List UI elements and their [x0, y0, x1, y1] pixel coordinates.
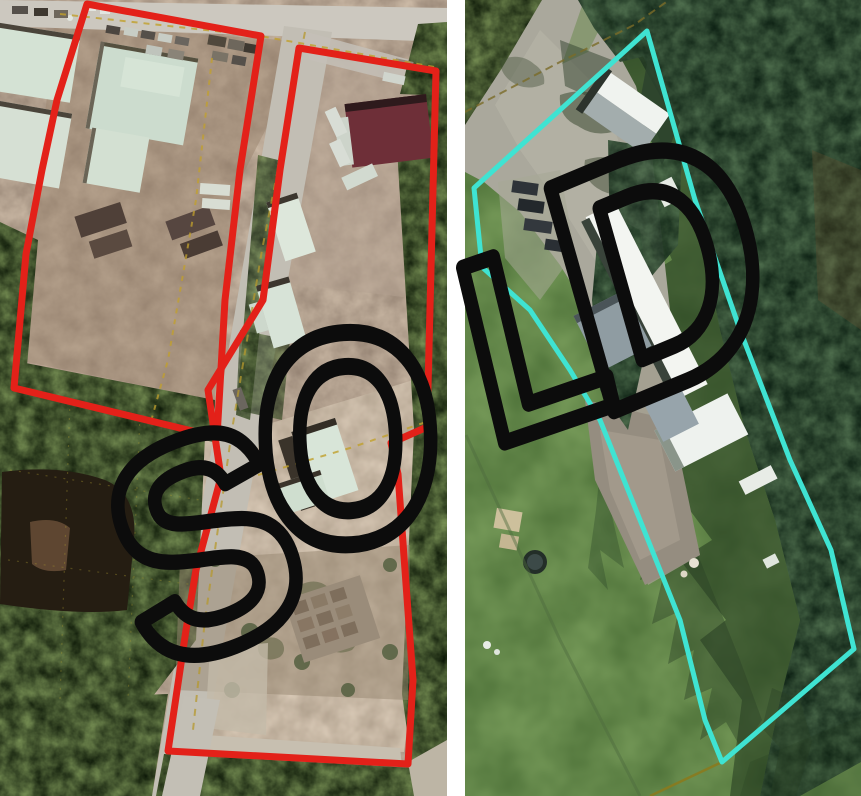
svg-text:O: O [249, 266, 448, 612]
